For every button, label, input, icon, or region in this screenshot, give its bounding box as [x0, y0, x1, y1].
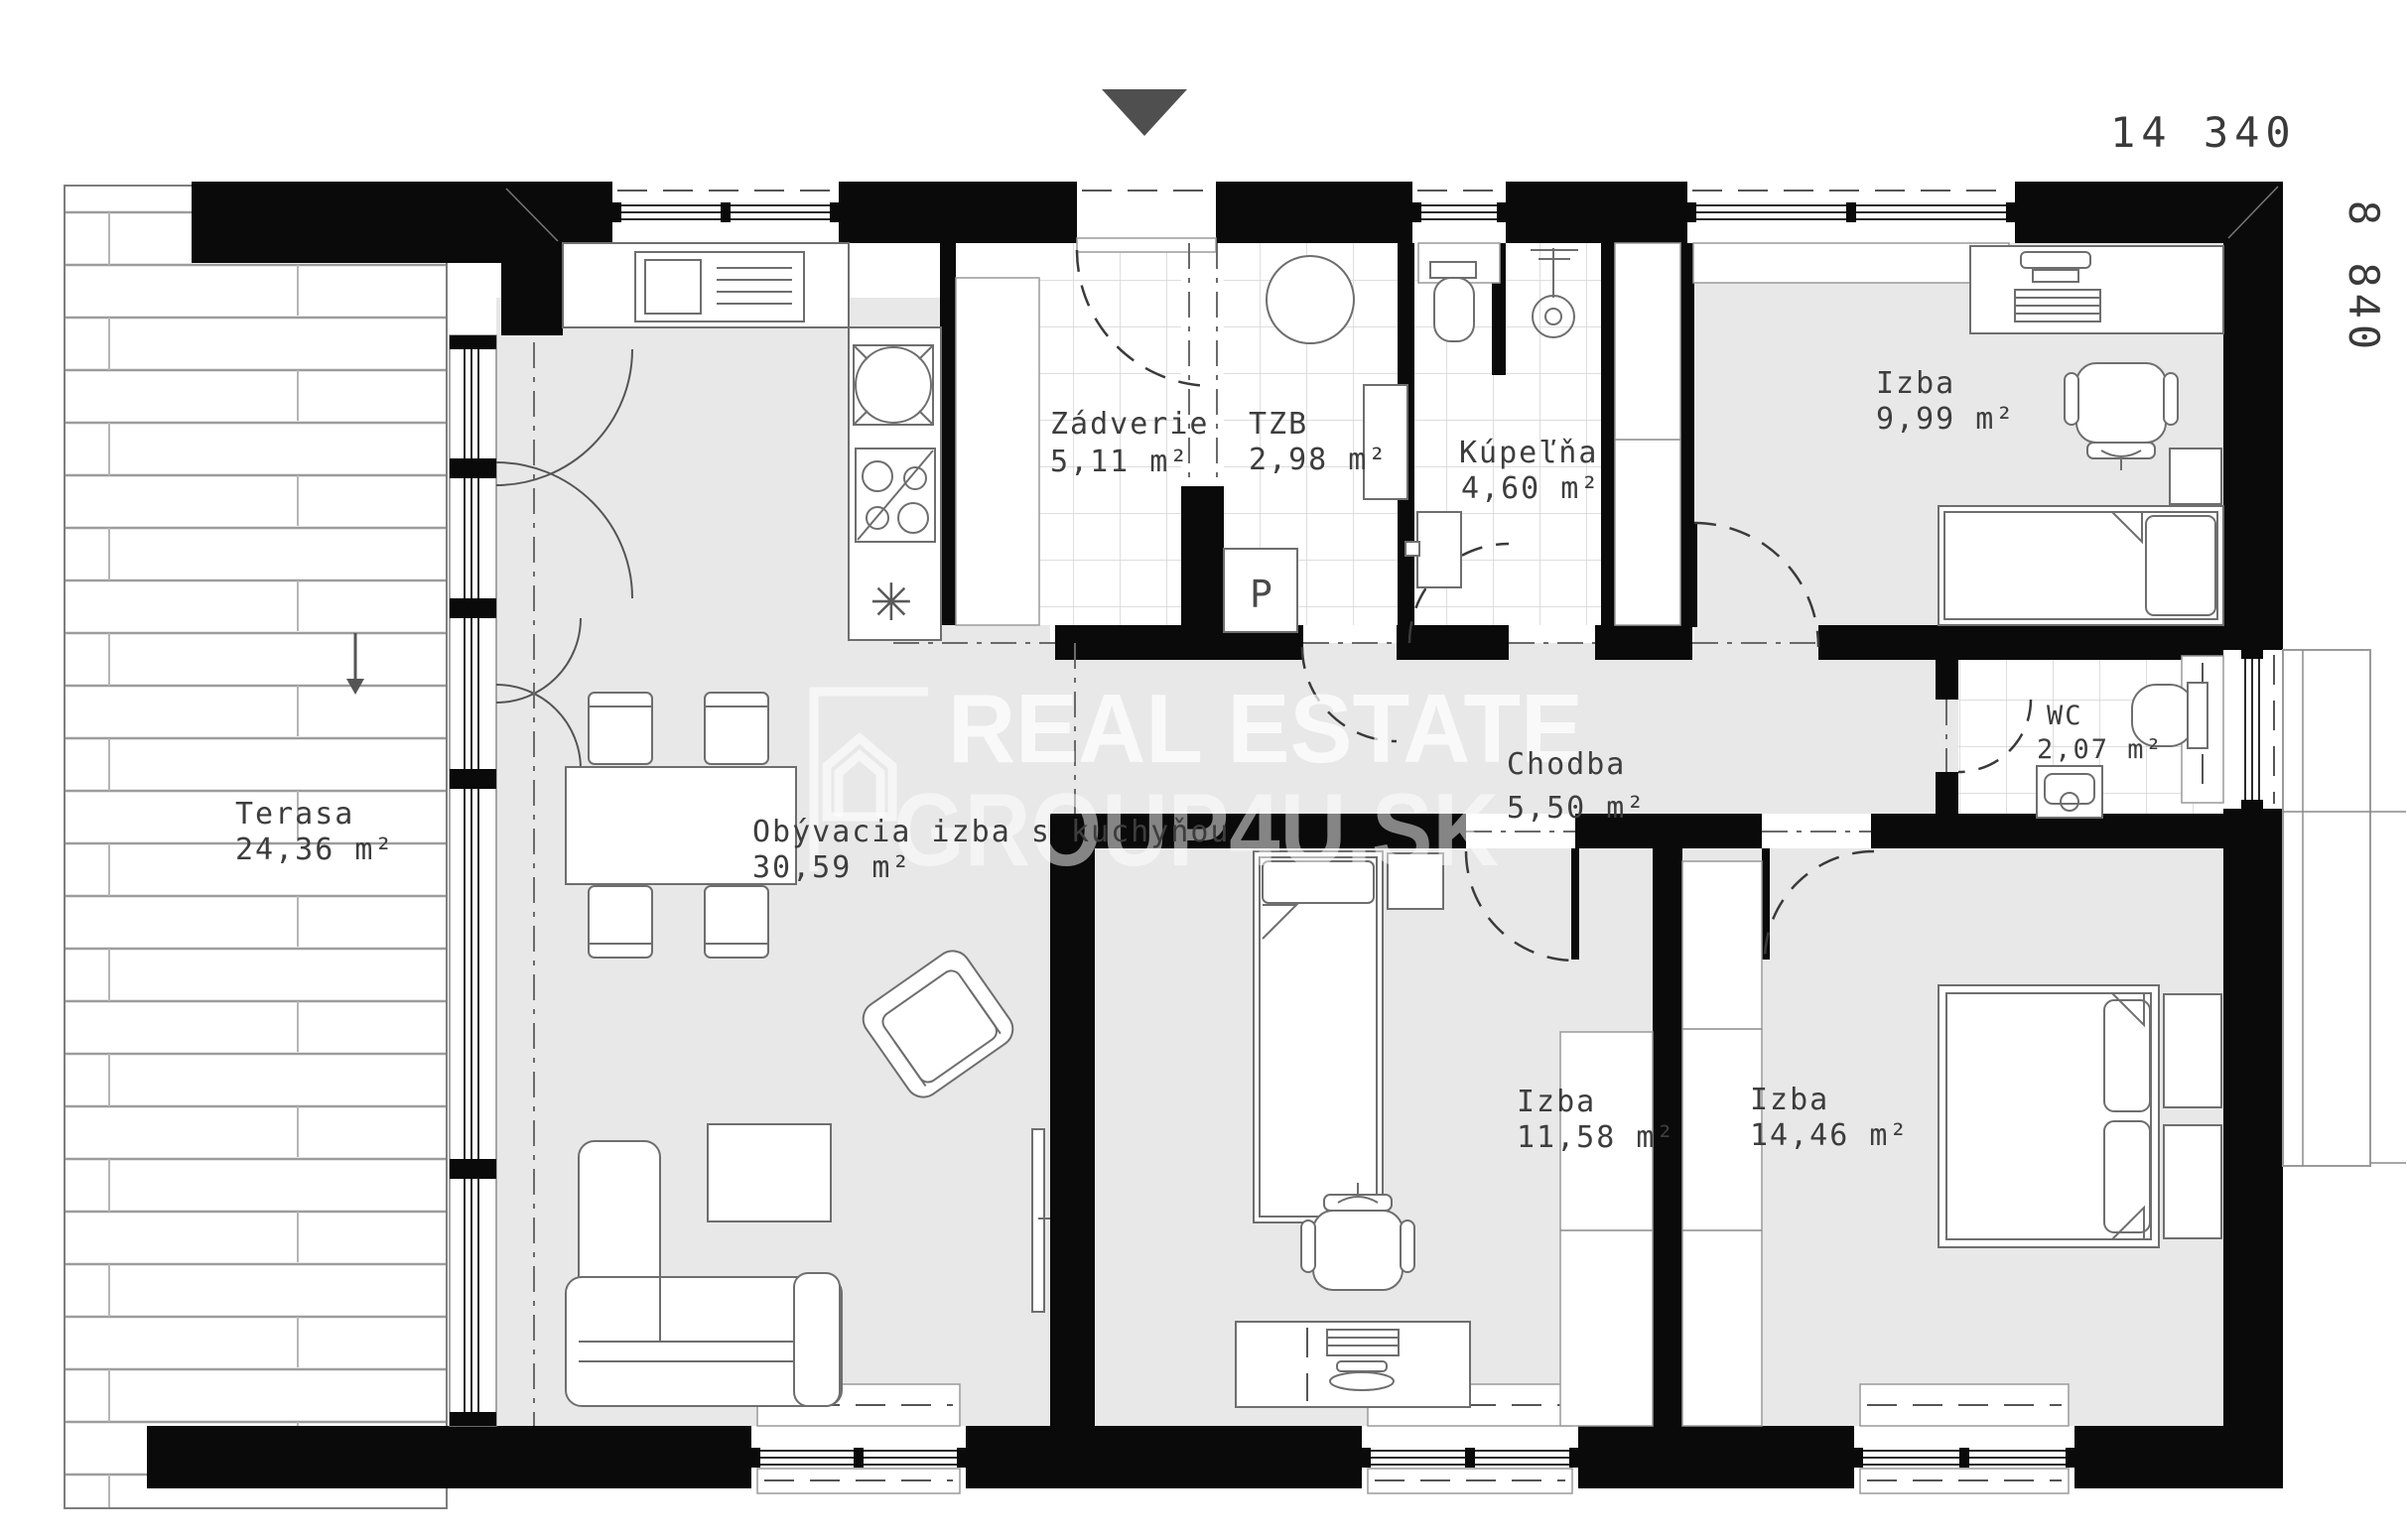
room-label-terasa: Terasa [235, 797, 354, 832]
desk2 [1236, 1322, 1470, 1407]
boiler-icon [1267, 256, 1354, 343]
nightstand1 [2170, 449, 2221, 504]
bed3 [1939, 985, 2159, 1247]
room-label-tzb: TZB [1249, 407, 1308, 442]
room-area-tzb: 2,98 m² [1249, 443, 1388, 477]
room-area-izba1: 9,99 m² [1876, 402, 2015, 437]
room-area-kupelna: 4,60 m² [1461, 471, 1600, 506]
bedroom1-window [1687, 182, 2015, 283]
room-label-chodba: Chodba [1507, 747, 1626, 782]
dimension-width: 14 340 [2110, 108, 2297, 157]
room-area-obyvacia: 30,59 m² [752, 850, 912, 885]
entrance-marker-icon [1102, 89, 1187, 136]
washing-machine-icon: P [1224, 549, 1297, 632]
room-area-wc: 2,07 m² [2037, 734, 2164, 765]
entry-closet [956, 278, 1039, 625]
room-area-chodba: 5,50 m² [1507, 791, 1646, 826]
wc-annex-outline [2283, 650, 2406, 1166]
bed1 [1939, 506, 2223, 625]
washing-machine-label: P [1250, 573, 1272, 616]
room-area-terasa: 24,36 m² [235, 833, 395, 867]
toilet-icon [1430, 262, 1476, 341]
room-area-izba2: 11,58 m² [1517, 1120, 1676, 1155]
floor-plan-page: ✳ P [0, 0, 2407, 1540]
room-label-kupelna: Kúpeľňa [1459, 436, 1598, 470]
dimension-height: 8 840 [2340, 200, 2388, 355]
room-label-zadverie: Zádverie [1050, 407, 1210, 442]
desk1 [1970, 246, 2223, 333]
floor-plan-drawing: ✳ P [0, 0, 2407, 1540]
nightstand3b [2164, 1125, 2221, 1238]
room-label-izba3: Izba [1750, 1083, 1829, 1117]
bedroom2-door-leaf [1571, 848, 1579, 960]
coffee-table [708, 1124, 831, 1221]
room-label-obyvacia: Obývacia izba s kuchyňou [752, 815, 1230, 849]
room-area-izba3: 14,46 m² [1750, 1118, 1910, 1153]
watermark-line1: REAL ESTATE [948, 674, 1583, 783]
bedroom3-window [1854, 1384, 2074, 1493]
room-label-izba1: Izba [1876, 366, 1955, 401]
room-label-izba2: Izba [1517, 1085, 1596, 1119]
bed2 [1254, 851, 1383, 1222]
room-area-zadverie: 5,11 m² [1050, 445, 1189, 479]
nightstand3a [2164, 994, 2221, 1107]
freezer-icon: ✳ [869, 574, 913, 633]
bedroom1-door-leaf [1689, 523, 1697, 627]
kitchen-counter-top [563, 243, 849, 327]
room-label-wc: WC [2047, 701, 2083, 731]
bathroom-closet [1615, 243, 1680, 625]
wc-sink-icon [2037, 766, 2102, 818]
